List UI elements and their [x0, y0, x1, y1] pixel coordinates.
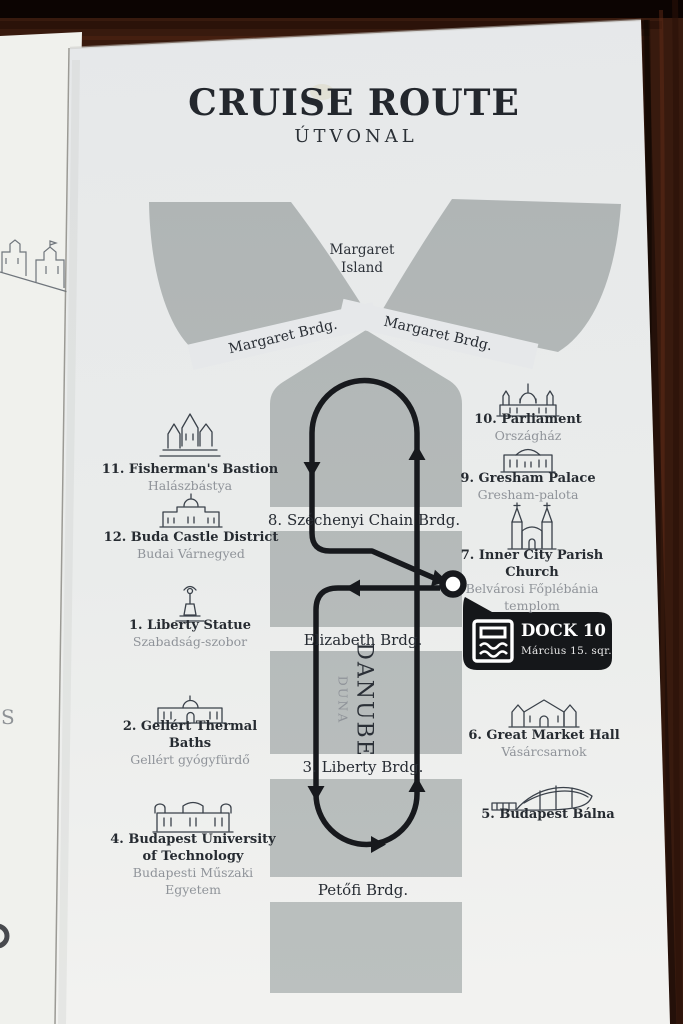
landmark-gresham-palace: 9. Gresham Palace Gresham-palota	[460, 470, 595, 504]
dock-badge-label: DOCK 10	[521, 621, 606, 640]
page-title: CRUISE ROUTE	[188, 82, 520, 124]
petofi-bridge-label: Petőfi Brdg.	[318, 881, 408, 899]
landmark-parliament: 10. Parliament Országház	[474, 411, 582, 445]
dock-badge-sublabel: Március 15. sqr.	[521, 645, 612, 657]
left-page-partial-letter: S	[1, 705, 15, 729]
margaret-island-label: Margaret Island	[330, 241, 395, 277]
photo-of-cruise-route-brochure: S	[0, 0, 683, 1024]
liberty-bridge-label: 3. Liberty Brdg.	[303, 758, 424, 776]
chain-bridge-label: 8. Széchenyi Chain Brdg.	[268, 511, 460, 529]
landmark-great-market-hall: 6. Great Market Hall Vásárcsarnok	[468, 727, 619, 761]
landmark-fishermans-bastion: 11. Fisherman's Bastion Halászbástya	[102, 461, 278, 495]
landmark-inner-city-parish-church: 7. Inner City Parish Church Belvárosi Fő…	[461, 547, 604, 614]
landmark-buda-castle: 12. Buda Castle District Budai Várnegyed	[104, 529, 279, 563]
landmark-technical-university: 4. Budapest University of Technology Bud…	[110, 831, 275, 898]
page-subtitle: ÚTVONAL	[294, 126, 417, 147]
river-local-name-label: DUNA	[336, 676, 351, 725]
landmark-budapest-balna: 5. Budapest Bálna	[481, 806, 615, 823]
landmark-gellert-baths: 2. Gellért Thermal Baths Gellért gyógyfü…	[123, 718, 257, 769]
river-name-label: DANUBE	[352, 642, 377, 758]
landmark-liberty-statue: 1. Liberty Statue Szabadság-szobor	[129, 617, 251, 651]
